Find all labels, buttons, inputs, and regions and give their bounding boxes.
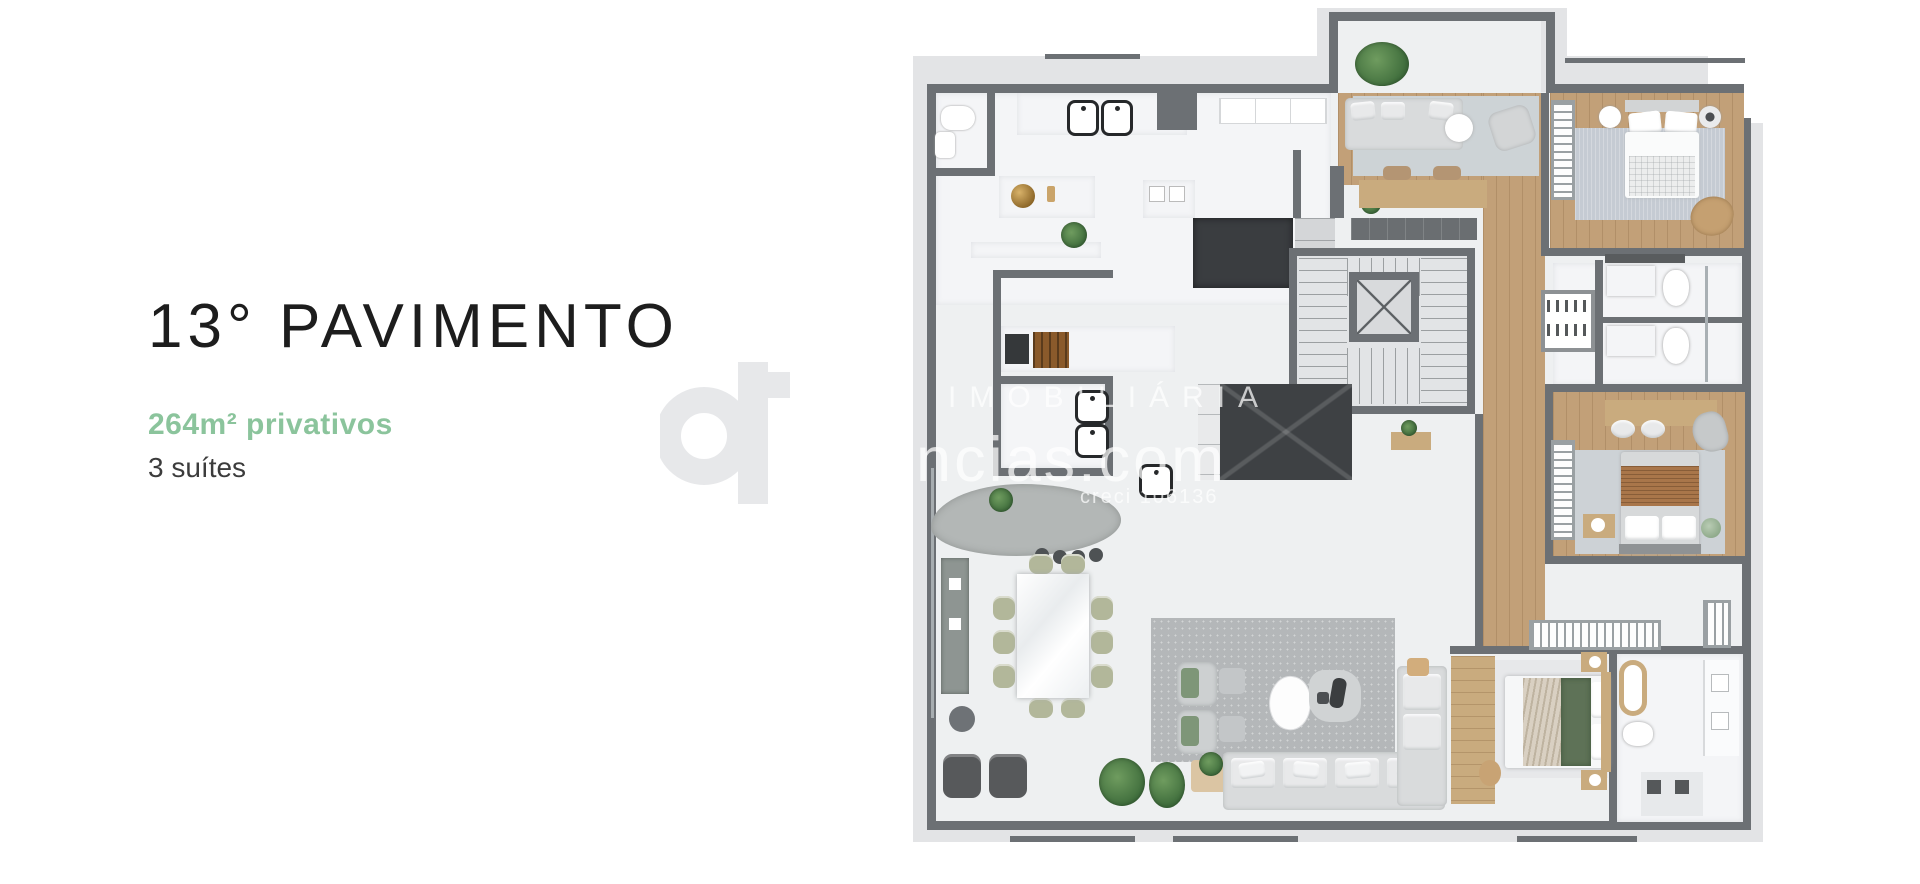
living-plant-icon [1149, 762, 1185, 808]
suite2-ball-plant-icon [1701, 518, 1721, 538]
suite2-wardrobe [1551, 440, 1575, 540]
master-basin-1 [1711, 674, 1729, 692]
wc-wall-h [935, 168, 995, 176]
sideboard-item [949, 578, 961, 590]
dining-chair [993, 596, 1015, 620]
sofa-cushion [1403, 714, 1441, 750]
suite1-wardrobe [1551, 100, 1575, 200]
wall-corridor-left [1475, 414, 1483, 646]
master-bathtub [1619, 660, 1647, 716]
dining-chair [993, 664, 1015, 688]
stair-treads-right [1421, 258, 1467, 404]
brass-tray [1011, 184, 1035, 208]
suite2-blanket [1621, 466, 1699, 506]
dark-cabinet-small [1005, 334, 1029, 364]
master-shower [1641, 772, 1703, 816]
wall-entry-chunk [1330, 166, 1344, 218]
wall-chunk-kitchen [1157, 88, 1197, 130]
suite1-bed-headboard [1625, 100, 1699, 112]
shower-glass [1705, 266, 1708, 382]
sofa-cushion [1403, 674, 1441, 710]
dark-armchair [989, 754, 1027, 798]
armchair-green-cushion [1181, 716, 1199, 746]
stair-treads-bottom [1347, 348, 1421, 404]
sofa-pillow [1292, 761, 1320, 780]
wall-suite1-left [1541, 93, 1549, 256]
bath1-vanity [1607, 266, 1655, 296]
wall-bottom [927, 821, 1751, 830]
wc-toilet [941, 106, 975, 130]
master-closet [1529, 620, 1661, 650]
dark-armchair [943, 754, 981, 798]
counter-plant-icon [1061, 222, 1087, 248]
suite1-nightstand [1599, 106, 1621, 128]
realty-logo-glyph-icon [660, 362, 790, 504]
hall-plant-icon [1401, 420, 1417, 436]
bath1-toilet [1663, 270, 1689, 306]
laundry-sink-1 [1067, 100, 1099, 136]
cooktop [1149, 186, 1165, 202]
dark-kitchen-island [1193, 218, 1293, 288]
shower-drain [1647, 780, 1661, 794]
entry-cabinet [1351, 218, 1477, 240]
shoe-row [1547, 324, 1589, 336]
suite2-pillow [1662, 516, 1696, 540]
entry-desk-chair [1433, 166, 1461, 180]
wall-kitchen-hall [1293, 150, 1301, 218]
shoe-row [1547, 300, 1589, 312]
master-toilet [1623, 722, 1653, 746]
watermark-registry: creci 106136 [1080, 486, 1219, 509]
dining-chair [1029, 698, 1053, 718]
kitchen-sink [1169, 186, 1185, 202]
master-throw-beige [1523, 678, 1561, 766]
stair-treads-left [1299, 258, 1347, 404]
page-title: 13° PAVIMENTO [148, 296, 679, 358]
dining-chair [993, 630, 1015, 654]
wall-protrusion-left [1329, 12, 1338, 93]
laundry-sink-2 [1101, 100, 1133, 136]
page: 13° PAVIMENTO 264m² privativos 3 suítes [0, 0, 1920, 884]
suite1-nightstand [1699, 106, 1721, 128]
suite2-pillow [1625, 516, 1659, 540]
wall-suite2-top [1545, 384, 1751, 392]
dining-chair [1061, 554, 1085, 574]
table-decor [1317, 692, 1329, 704]
dining-plant-icon [1099, 758, 1145, 806]
wall-tick-2 [1173, 836, 1298, 842]
suites-label: 3 suítes [148, 452, 246, 484]
wall-protrusion-top [1329, 12, 1555, 21]
sofa-tan-pillow [1407, 658, 1429, 676]
master-desk-chair [1479, 760, 1501, 786]
wall-bath-divider [1599, 317, 1743, 323]
armchair-green-cushion [1181, 668, 1199, 698]
dining-chair [1091, 630, 1113, 654]
master-basin-2 [1711, 712, 1729, 730]
entry-plant-icon [1355, 42, 1409, 86]
side-table-plant-icon [1199, 752, 1223, 776]
entry-round-table [1445, 114, 1473, 142]
amber-cabinet [1033, 332, 1069, 368]
entry-sofa-pillow [1350, 101, 1376, 121]
wall-tick-3 [1517, 836, 1637, 842]
bath2-vanity [1607, 326, 1655, 356]
wall-protrusion-right [1546, 12, 1555, 93]
wall-bath-left [1595, 260, 1603, 386]
suite2-headboard [1619, 544, 1701, 554]
round-stool [949, 706, 975, 732]
dining-chair [1061, 698, 1085, 718]
wall-top-left [927, 84, 1329, 93]
watermark-brand-top: IMOBILIÁRIA [948, 381, 1271, 415]
decor-bottle [1047, 186, 1055, 202]
sideboard-item [949, 618, 961, 630]
wall-tick-top [1045, 54, 1140, 59]
sofa-pillow [1344, 761, 1371, 779]
elevator-shaft [1349, 272, 1419, 342]
wall-top-right [1555, 84, 1744, 93]
suite2-lamp [1591, 518, 1605, 532]
master-duvet-green [1561, 678, 1591, 766]
dining-chair [1029, 554, 1053, 574]
suite2-chair [1641, 420, 1665, 438]
upper-cabinets [1219, 98, 1327, 124]
living-ottoman [1219, 716, 1245, 742]
entry-desk [1359, 180, 1487, 208]
glass-wall [931, 468, 934, 718]
wall-pantry-h [993, 270, 1113, 278]
entry-desk-chair [1383, 166, 1411, 180]
living-ottoman [1219, 668, 1245, 694]
stone-stool [1089, 548, 1103, 562]
master-headboard [1601, 672, 1611, 772]
dining-chair [1091, 596, 1113, 620]
wall-tick-1 [1010, 836, 1135, 842]
wall-suite2-bottom [1545, 556, 1751, 564]
entry-sofa-pillow [1381, 102, 1405, 120]
wall-tick-top-right [1565, 58, 1745, 63]
master-closet-2 [1703, 600, 1731, 648]
dining-table [1017, 574, 1089, 698]
private-area-label: 264m² privativos [148, 408, 393, 442]
dining-chair [1091, 664, 1113, 688]
bath2-toilet [1663, 328, 1689, 364]
suite1-blanket [1629, 156, 1695, 196]
corridor-wood-floor [1483, 93, 1545, 653]
master-lamp [1589, 656, 1601, 668]
suite2-chair [1611, 420, 1635, 438]
wc-wall-v [987, 93, 995, 176]
wc-sink [935, 132, 955, 158]
master-lamp [1589, 774, 1601, 786]
shower-drain [1675, 780, 1689, 794]
